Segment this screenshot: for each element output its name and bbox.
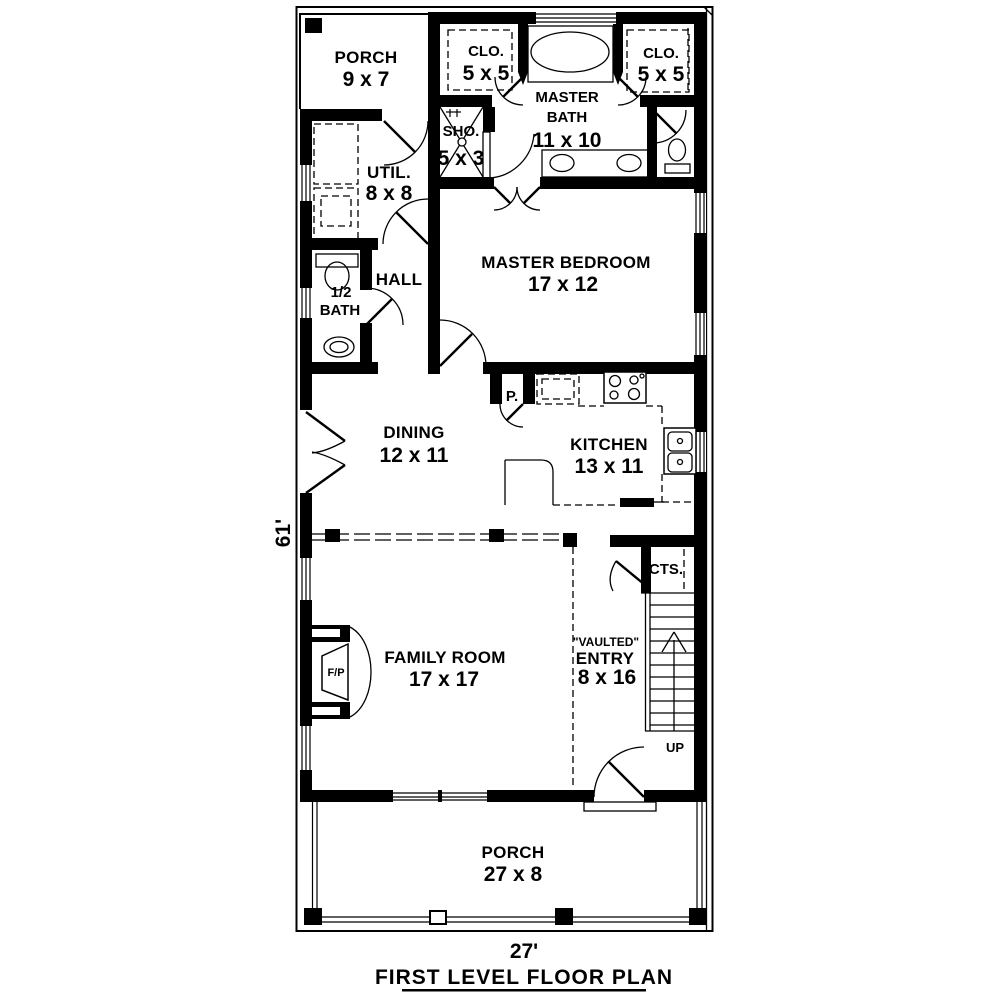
washer-dryer	[314, 124, 358, 244]
label-stairs-up: UP	[666, 740, 684, 755]
label-utility-name: UTIL.	[367, 163, 411, 182]
door-stair-closet	[610, 561, 645, 591]
window-half-bath	[300, 288, 312, 318]
label-master-bath-1: MASTER	[535, 89, 599, 106]
door-front-entry	[594, 747, 644, 797]
label-entry-size: 8 x 16	[578, 666, 636, 689]
colonnade-line	[312, 529, 563, 542]
label-porch-bottom-size: 27 x 8	[484, 863, 543, 886]
label-kitchen-size: 13 x 11	[575, 455, 644, 478]
porch-column	[689, 908, 707, 925]
label-family-room-name: FAMILY ROOM	[384, 648, 505, 667]
label-closet-left-size: 5 x 5	[463, 62, 510, 85]
label-master-bath-2: BATH	[547, 109, 588, 126]
label-shower-size: 5 x 3	[438, 147, 485, 170]
label-hall: HALL	[376, 270, 423, 289]
porch-column-open	[430, 911, 446, 924]
label-master-bedroom-name: MASTER BEDROOM	[481, 253, 650, 272]
door-half-bath	[366, 288, 403, 325]
porch-post-square	[305, 18, 322, 33]
porch-column	[555, 908, 573, 925]
label-fireplace: F/P	[327, 667, 344, 679]
label-master-bedroom-size: 17 x 12	[528, 273, 598, 296]
dimension-depth: 61'	[272, 519, 295, 547]
label-utility-size: 8 x 8	[366, 182, 413, 205]
stairs-up-arrow	[662, 632, 686, 731]
label-dining-name: DINING	[383, 423, 444, 442]
door-porch-to-utility	[384, 121, 428, 165]
door-pantry	[500, 404, 523, 427]
entry-stoop	[584, 802, 656, 811]
label-entry-1: "VAULTED"	[573, 635, 639, 649]
floor-plan-page: PORCH 9 x 7 CLO. 5 x 5 CLO. 5 x 5 MASTER…	[0, 0, 1000, 1000]
label-closet-left-name: CLO.	[468, 43, 504, 60]
bathtub	[528, 26, 613, 82]
label-porch-top-size: 9 x 7	[343, 68, 390, 91]
dimension-width: 27'	[510, 940, 538, 963]
toilet-master	[665, 139, 690, 173]
label-closet-right-size: 5 x 5	[638, 63, 685, 86]
label-master-bath-size: 11 x 10	[533, 129, 602, 152]
title-underline	[402, 989, 646, 992]
porch-column	[304, 908, 322, 925]
floor-plan-canvas: PORCH 9 x 7 CLO. 5 x 5 CLO. 5 x 5 MASTER…	[0, 0, 1000, 1000]
fixtures	[302, 26, 706, 811]
label-porch-bottom-name: PORCH	[482, 843, 545, 862]
stove	[604, 372, 646, 403]
label-family-room-size: 17 x 17	[409, 668, 479, 691]
label-half-bath-1: 1/2	[331, 284, 352, 301]
page-title: FIRST LEVEL FLOOR PLAN	[375, 966, 673, 989]
door-master-bedroom	[440, 320, 486, 366]
vanity-double-sink	[542, 150, 648, 177]
window-family-1	[300, 558, 312, 600]
half-bath-toilet	[324, 337, 354, 357]
refrigerator	[537, 374, 579, 404]
kitchen-sink	[664, 428, 696, 474]
label-porch-top-name: PORCH	[335, 48, 398, 67]
door-shower	[483, 132, 534, 178]
label-shower-name: SHO.	[443, 123, 480, 140]
window-bedroom-2	[694, 313, 706, 355]
label-stair-closet: CTS.	[649, 561, 683, 578]
label-dining-size: 12 x 11	[380, 444, 449, 467]
label-closet-right-name: CLO.	[643, 45, 679, 62]
label-half-bath-2: BATH	[320, 302, 361, 319]
label-pantry: P.	[506, 388, 518, 405]
door-hall-to-utility	[383, 199, 428, 244]
window-family-2	[300, 726, 312, 770]
window-bedroom-1	[694, 193, 706, 233]
door-bath-double	[494, 187, 540, 210]
window-utility	[300, 165, 312, 201]
label-kitchen-name: KITCHEN	[570, 435, 648, 454]
door-toilet-room	[653, 110, 686, 143]
